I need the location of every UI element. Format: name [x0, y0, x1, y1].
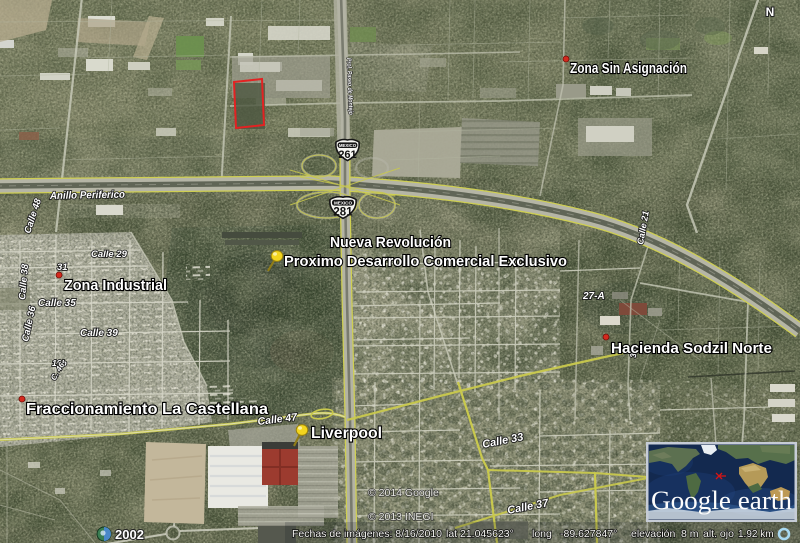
- svg-text:MEXICO: MEXICO: [334, 201, 353, 206]
- svg-text:Liverpool: Liverpool: [311, 425, 382, 442]
- svg-text:Zona Sin Asignación: Zona Sin Asignación: [570, 61, 687, 77]
- svg-text:Hacienda Sodzil Norte: Hacienda Sodzil Norte: [611, 340, 772, 357]
- svg-text:261: 261: [338, 149, 356, 161]
- svg-text:31: 31: [57, 262, 68, 273]
- svg-text:elevación: elevación: [631, 528, 676, 540]
- svg-text:27-A: 27-A: [582, 291, 605, 302]
- svg-text:Nueva Revolución: Nueva Revolución: [330, 234, 451, 251]
- svg-text:Calle 29: Calle 29: [91, 249, 128, 260]
- svg-text:Proximo Desarrollo Comercial E: Proximo Desarrollo Comercial Exclusivo: [284, 253, 567, 270]
- svg-text:© 2014 Google: © 2014 Google: [368, 487, 439, 499]
- svg-text:Calle 39: Calle 39: [80, 328, 118, 339]
- svg-text:N: N: [766, 5, 775, 19]
- svg-text:© 2013 INEGI: © 2013 INEGI: [368, 511, 434, 523]
- svg-text:8 m: 8 m: [681, 528, 699, 540]
- svg-text:Fechas de imágenes: 8/16/2010: Fechas de imágenes: 8/16/2010: [292, 528, 442, 540]
- svg-text:Google earth: Google earth: [651, 486, 792, 515]
- svg-text:2002: 2002: [115, 527, 144, 542]
- svg-text:alt. ojo: alt. ojo: [703, 528, 734, 540]
- svg-text:21.045623°: 21.045623°: [460, 528, 514, 540]
- svg-text:Calle 35: Calle 35: [38, 298, 76, 309]
- svg-text:long: long: [532, 528, 552, 540]
- svg-text:lat: lat: [446, 528, 457, 540]
- svg-text:281: 281: [333, 207, 353, 219]
- svg-text:Anillo Periferico: Anillo Periferico: [49, 189, 126, 202]
- svg-text:MEXICO: MEXICO: [339, 143, 357, 148]
- svg-text:1.92 km: 1.92 km: [738, 529, 774, 540]
- svg-text:-89.627847°: -89.627847°: [560, 528, 617, 540]
- svg-text:Fraccionamiento La Castellana: Fraccionamiento La Castellana: [26, 401, 268, 418]
- svg-text:Zona Industrial: Zona Industrial: [64, 278, 167, 294]
